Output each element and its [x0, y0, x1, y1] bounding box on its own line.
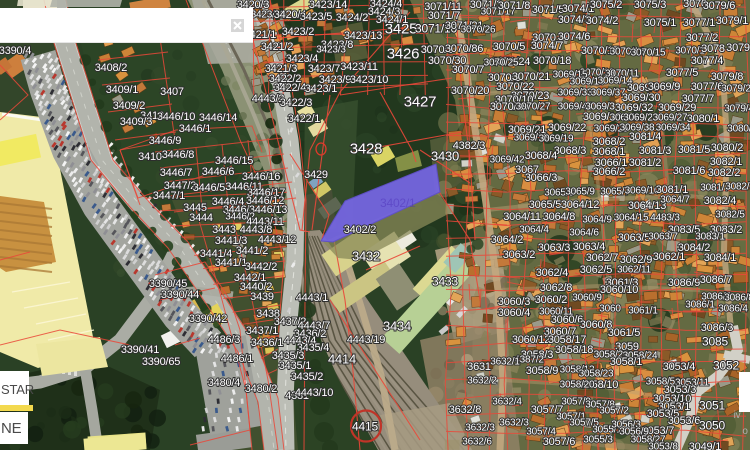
svg-text:3053/8: 3053/8	[648, 442, 678, 450]
svg-text:3057/4: 3057/4	[526, 427, 556, 438]
svg-text:3060/2: 3060/2	[535, 294, 568, 306]
svg-text:3082/4: 3082/4	[704, 195, 737, 207]
svg-text:3077/6: 3077/6	[691, 81, 724, 93]
svg-text:3436/1: 3436/1	[251, 337, 284, 349]
svg-text:3070/18: 3070/18	[533, 55, 571, 67]
svg-text:3446/16: 3446/16	[242, 171, 280, 183]
svg-text:3409/3: 3409/3	[120, 116, 153, 128]
svg-text:3064/12: 3064/12	[561, 199, 599, 211]
svg-text:3064/6: 3064/6	[569, 228, 599, 239]
svg-text:3390/42: 3390/42	[189, 313, 227, 325]
svg-text:3081/3: 3081/3	[639, 145, 672, 157]
svg-text:3058/1: 3058/1	[610, 356, 643, 368]
svg-text:3080/3: 3080/3	[727, 124, 750, 135]
svg-text:3632/2: 3632/2	[467, 376, 497, 387]
svg-text:3060/9: 3060/9	[572, 293, 602, 304]
svg-text:3423/11: 3423/11	[340, 61, 378, 73]
svg-text:4443/19: 4443/19	[347, 334, 385, 346]
svg-text:3079: 3079	[726, 42, 750, 54]
svg-text:3062/5: 3062/5	[580, 264, 613, 276]
svg-text:3075/2: 3075/2	[590, 0, 623, 11]
svg-text:3057/6: 3057/6	[543, 436, 576, 448]
svg-text:3065/5: 3065/5	[529, 199, 562, 211]
svg-text:3069/19: 3069/19	[539, 134, 574, 145]
svg-text:3426: 3426	[387, 45, 420, 62]
svg-text:3070/7: 3070/7	[452, 64, 485, 76]
svg-text:STAR: STAR	[1, 382, 34, 397]
svg-text:3423/1: 3423/1	[305, 83, 338, 95]
svg-text:3082/5: 3082/5	[715, 210, 745, 221]
svg-text:NE: NE	[1, 420, 22, 437]
svg-text:3402/1: 3402/1	[380, 196, 416, 210]
svg-text:3390/4: 3390/4	[0, 45, 31, 57]
svg-text:3446/7: 3446/7	[160, 167, 193, 179]
svg-text:3053/4: 3053/4	[663, 361, 696, 373]
svg-text:3423/5: 3423/5	[300, 11, 333, 23]
svg-text:3432: 3432	[352, 249, 380, 264]
svg-text:3632/6: 3632/6	[462, 437, 492, 448]
svg-text:o: o	[742, 426, 748, 437]
svg-text:3077/5: 3077/5	[666, 67, 699, 79]
svg-text:3069/33: 3069/33	[558, 88, 593, 99]
svg-text:3070/20: 3070/20	[451, 85, 489, 97]
svg-text:3085: 3085	[702, 334, 728, 348]
svg-text:3063/2: 3063/2	[503, 249, 536, 261]
svg-text:4443/10: 4443/10	[295, 387, 333, 399]
svg-text:3057/2: 3057/2	[599, 406, 629, 417]
svg-text:3069/37: 3069/37	[591, 88, 626, 99]
svg-text:3062/4: 3062/4	[536, 267, 569, 279]
svg-text:3068/4: 3068/4	[525, 150, 558, 162]
svg-text:3446/6: 3446/6	[202, 166, 235, 178]
svg-text:3070/86: 3070/86	[445, 43, 483, 55]
svg-text:3060/6: 3060/6	[551, 314, 584, 326]
svg-text:3066/3: 3066/3	[525, 172, 558, 184]
svg-text:3070/26: 3070/26	[461, 25, 496, 36]
svg-text:3061/1: 3061/1	[628, 306, 658, 317]
svg-text:3390/65: 3390/65	[142, 356, 180, 368]
svg-text:4414: 4414	[328, 352, 356, 367]
svg-text:3078: 3078	[701, 43, 725, 55]
svg-text:3074/2: 3074/2	[586, 15, 619, 27]
svg-text:3422/4: 3422/4	[274, 82, 307, 94]
svg-text:3424/2: 3424/2	[336, 12, 369, 24]
svg-text:3446/5: 3446/5	[193, 182, 226, 194]
svg-text:3424/1: 3424/1	[376, 14, 409, 26]
svg-text:3081/6: 3081/6	[673, 165, 706, 177]
svg-text:3079/4: 3079/4	[724, 104, 750, 115]
svg-text:3064/4: 3064/4	[519, 225, 549, 236]
svg-text:3080/2: 3080/2	[711, 142, 744, 154]
svg-text:3050: 3050	[699, 418, 725, 432]
svg-text:3631: 3631	[467, 361, 491, 373]
svg-text:3070/25: 3070/25	[484, 58, 519, 69]
svg-text:3480/4: 3480/4	[208, 377, 241, 389]
svg-text:3058/23: 3058/23	[579, 369, 614, 380]
svg-text:3437/1: 3437/1	[246, 325, 279, 337]
svg-text:3407: 3407	[160, 86, 184, 98]
svg-text:3086/3: 3086/3	[701, 322, 734, 334]
svg-text:3062/11: 3062/11	[617, 265, 652, 276]
svg-text:3060: 3060	[599, 304, 621, 315]
svg-text:3060/4: 3060/4	[498, 307, 531, 319]
svg-text:3083/1: 3083/1	[695, 232, 725, 243]
svg-text:3064/8: 3064/8	[543, 211, 576, 223]
svg-text:3079/6: 3079/6	[703, 0, 736, 12]
svg-text:3086/4: 3086/4	[718, 304, 748, 315]
svg-text:3409/1: 3409/1	[106, 84, 139, 96]
svg-text:3079/1: 3079/1	[716, 15, 749, 27]
svg-text:4486/3: 4486/3	[208, 334, 241, 346]
svg-text:4415: 4415	[352, 419, 378, 433]
svg-text:3423/3: 3423/3	[316, 45, 346, 56]
svg-text:3056/9: 3056/9	[619, 427, 649, 438]
svg-text:3422/3: 3422/3	[280, 97, 313, 109]
svg-text:3446/8: 3446/8	[162, 149, 195, 161]
svg-text:3434: 3434	[383, 319, 411, 334]
svg-text:3052: 3052	[713, 358, 739, 372]
svg-text:3062/7: 3062/7	[586, 252, 619, 264]
svg-text:3410: 3410	[138, 151, 162, 163]
svg-text:3070/5: 3070/5	[493, 41, 526, 53]
svg-text:3069/10: 3069/10	[625, 186, 660, 197]
svg-text:3077/1: 3077/1	[683, 17, 716, 29]
svg-text:3444: 3444	[189, 212, 213, 224]
svg-text:3423/2: 3423/2	[282, 26, 315, 38]
svg-text:iv: iv	[734, 410, 741, 421]
svg-text:3428: 3428	[350, 140, 383, 157]
svg-text:3082/2: 3082/2	[708, 167, 741, 179]
svg-text:3058/18: 3058/18	[555, 344, 593, 356]
svg-text:3480/2: 3480/2	[245, 383, 278, 395]
svg-text:3086/1: 3086/1	[685, 300, 715, 311]
svg-text:3632/8: 3632/8	[449, 404, 482, 416]
svg-text:3439: 3439	[250, 291, 274, 303]
svg-text:3070/15: 3070/15	[631, 48, 666, 59]
svg-text:3423/14: 3423/14	[309, 0, 347, 11]
svg-text:4382/3: 4382/3	[453, 140, 486, 152]
svg-text:4483/3: 4483/3	[650, 213, 680, 224]
svg-text:3429: 3429	[304, 169, 328, 181]
svg-text:3441/1: 3441/1	[215, 257, 248, 269]
svg-text:3081/5: 3081/5	[678, 144, 711, 156]
svg-text:3632/3: 3632/3	[499, 418, 529, 429]
svg-text:3446/9: 3446/9	[149, 135, 182, 147]
svg-text:3068/3: 3068/3	[554, 145, 587, 157]
svg-text:3075/1: 3075/1	[644, 17, 677, 29]
svg-text:3402/2: 3402/2	[344, 224, 377, 236]
svg-text:3422/1: 3422/1	[288, 113, 321, 125]
svg-text:4443/1: 4443/1	[296, 292, 329, 304]
svg-text:3081/2: 3081/2	[629, 157, 662, 169]
svg-text:3060/12: 3060/12	[512, 334, 550, 346]
svg-text:3077/4: 3077/4	[691, 55, 724, 67]
svg-text:3063/7: 3063/7	[648, 232, 678, 243]
svg-text:3433: 3433	[432, 274, 458, 288]
svg-text:3055/3: 3055/3	[583, 435, 613, 446]
svg-text:3086/7: 3086/7	[700, 274, 733, 286]
svg-text:3061/5: 3061/5	[608, 327, 641, 339]
svg-text:3051: 3051	[699, 398, 725, 412]
svg-text:3079/2: 3079/2	[721, 84, 750, 95]
svg-text:3446/10: 3446/10	[157, 111, 195, 123]
svg-text:3082/3: 3082/3	[725, 182, 750, 193]
svg-text:3632/3: 3632/3	[465, 423, 495, 434]
svg-text:3069/22: 3069/22	[548, 122, 586, 134]
svg-text:3435/2: 3435/2	[291, 371, 324, 383]
svg-text:3441/2: 3441/2	[236, 245, 269, 257]
svg-text:3071/8: 3071/8	[498, 0, 531, 12]
svg-text:3070/27: 3070/27	[516, 102, 551, 113]
svg-text:3421/2: 3421/2	[261, 41, 294, 53]
svg-text:3074/7: 3074/7	[531, 40, 564, 52]
svg-text:3423/10: 3423/10	[350, 74, 388, 86]
svg-text:3632/1: 3632/1	[490, 357, 520, 368]
svg-text:3081/4: 3081/4	[629, 131, 662, 143]
svg-text:3064/7: 3064/7	[660, 195, 690, 206]
svg-text:3390/41: 3390/41	[121, 344, 159, 356]
svg-text:3066/2: 3066/2	[593, 166, 626, 178]
svg-text:3049/1: 3049/1	[689, 441, 722, 450]
svg-text:3064/2: 3064/2	[491, 234, 524, 246]
svg-text:3064/9: 3064/9	[582, 215, 612, 226]
svg-text:3086/8: 3086/8	[724, 293, 750, 304]
svg-text:3062/8: 3062/8	[540, 282, 573, 294]
svg-text:3064/11: 3064/11	[503, 211, 541, 223]
svg-text:3058/9: 3058/9	[526, 365, 559, 377]
svg-text:3080/1: 3080/1	[687, 113, 720, 125]
svg-text:3447/1: 3447/1	[153, 190, 186, 202]
svg-text:3427: 3427	[404, 93, 437, 110]
svg-text:4486/1: 4486/1	[221, 353, 254, 365]
svg-text:3075/3: 3075/3	[634, 0, 667, 11]
svg-text:3060/10: 3060/10	[600, 284, 638, 296]
svg-text:3446/1: 3446/1	[179, 123, 212, 135]
svg-text:3632/4: 3632/4	[492, 397, 522, 408]
svg-text:3086/9: 3086/9	[668, 277, 701, 289]
svg-text:3064/15: 3064/15	[614, 213, 649, 224]
svg-text:3058/20: 3058/20	[560, 380, 595, 391]
svg-text:3408/2: 3408/2	[95, 62, 128, 74]
svg-text:3065/9: 3065/9	[565, 187, 595, 198]
svg-text:3063/5: 3063/5	[618, 232, 651, 244]
svg-text:3390/44: 3390/44	[161, 289, 199, 301]
svg-text:3063/3: 3063/3	[538, 242, 571, 254]
svg-text:3084/1: 3084/1	[704, 252, 737, 264]
